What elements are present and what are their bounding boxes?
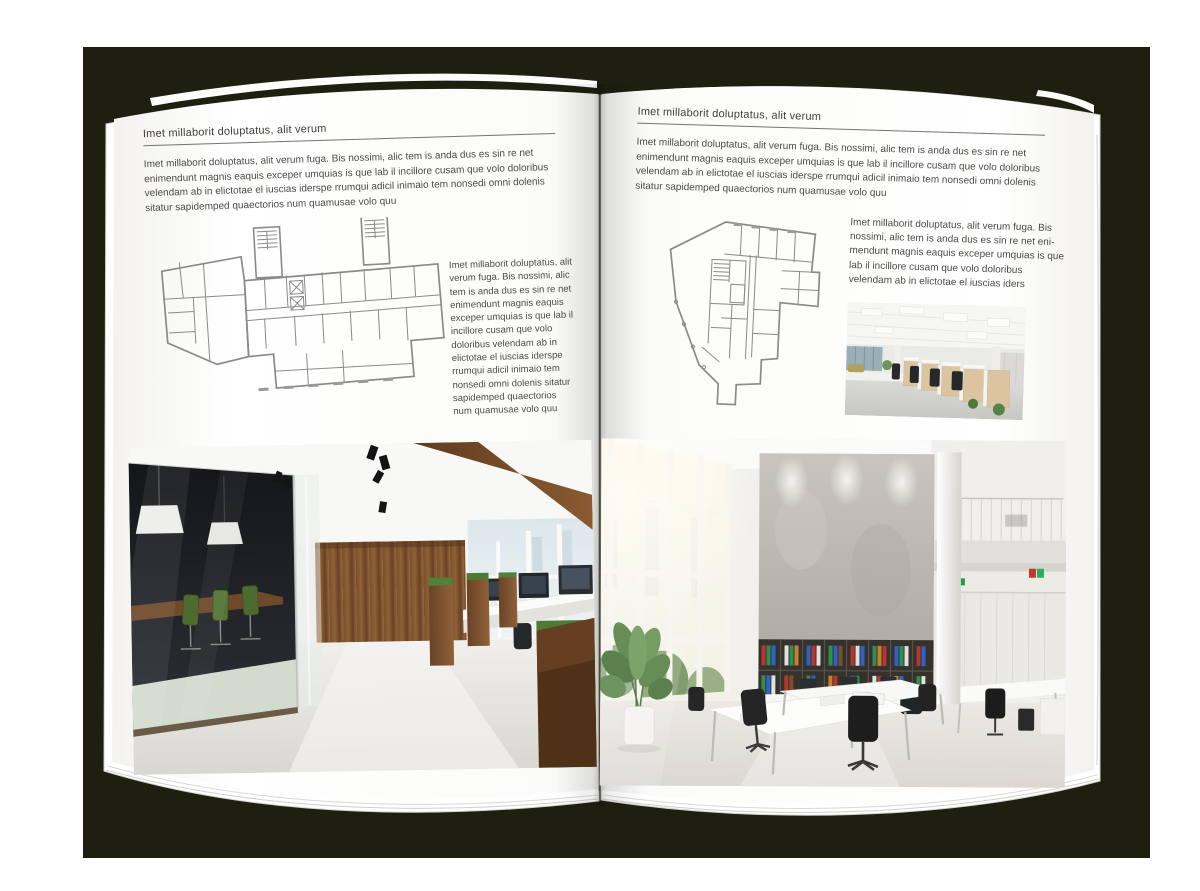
ceiling-lights (847, 302, 1026, 349)
floorplan-right (649, 206, 832, 418)
page-right-header-rule (637, 123, 1045, 136)
page-left-intro: Imet millaborit doluptatus, alit verum f… (144, 146, 564, 216)
photo-atrium-office (600, 438, 1067, 787)
page-left: Imet millaborit doluptatus, alit verum I… (102, 79, 613, 799)
page-right-side-paragraph: Imet millaborit doluptatus, alit verum f… (848, 216, 1068, 293)
round-column (936, 452, 961, 704)
photo-loft-office (128, 440, 597, 775)
glass-meeting-room (129, 460, 299, 737)
page-right: Imet millaborit doluptatus, alit verum I… (587, 69, 1106, 803)
concrete-feature-wall (759, 453, 935, 644)
photo-small-office (845, 302, 1026, 420)
floorplan-left (152, 215, 449, 412)
page-left-side-paragraph: Imet millaborit doluptatus, alit verum f… (449, 256, 578, 419)
page-right-intro: Imet millaborit doluptatus, alit verum f… (635, 136, 1051, 206)
page-right-header: Imet millaborit doluptatus, alit verum (637, 106, 821, 123)
lobby-sofa (848, 364, 864, 372)
page-left-header: Imet millaborit doluptatus, alit verum (143, 123, 327, 140)
